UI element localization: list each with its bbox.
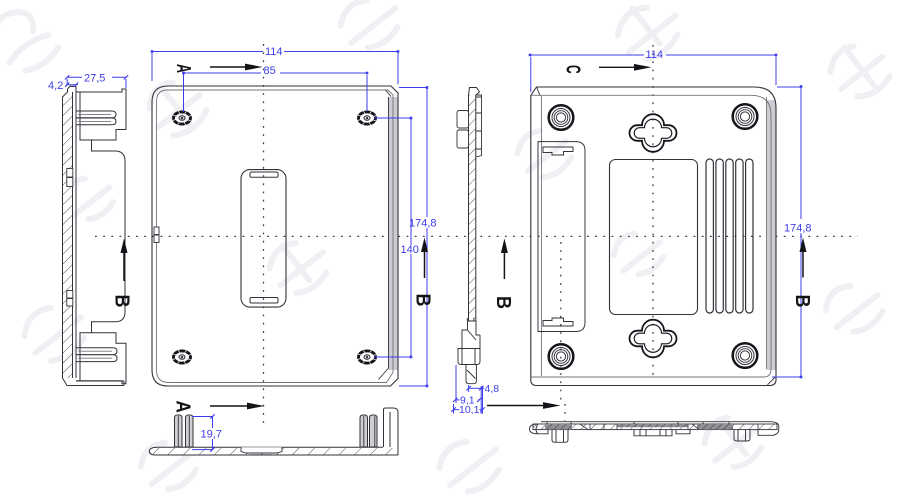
svg-text:B: B [791, 295, 813, 308]
svg-text:C: C [562, 65, 584, 74]
svg-text:B: B [411, 294, 433, 307]
svg-text:B: B [492, 296, 514, 309]
svg-text:114: 114 [265, 46, 283, 58]
svg-text:174,8: 174,8 [409, 218, 437, 230]
svg-text:19,7: 19,7 [201, 429, 222, 441]
svg-text:A: A [172, 64, 195, 73]
svg-text:114: 114 [646, 49, 664, 61]
svg-text:10,1: 10,1 [459, 404, 480, 416]
svg-text:4,2: 4,2 [48, 80, 63, 92]
svg-text:B: B [110, 295, 132, 308]
svg-text:A: A [172, 401, 195, 413]
svg-text:85: 85 [264, 65, 276, 77]
svg-text:140: 140 [401, 244, 419, 256]
svg-text:4,8: 4,8 [485, 383, 500, 395]
svg-text:27,5: 27,5 [84, 73, 105, 85]
svg-text:174,8: 174,8 [784, 223, 812, 235]
